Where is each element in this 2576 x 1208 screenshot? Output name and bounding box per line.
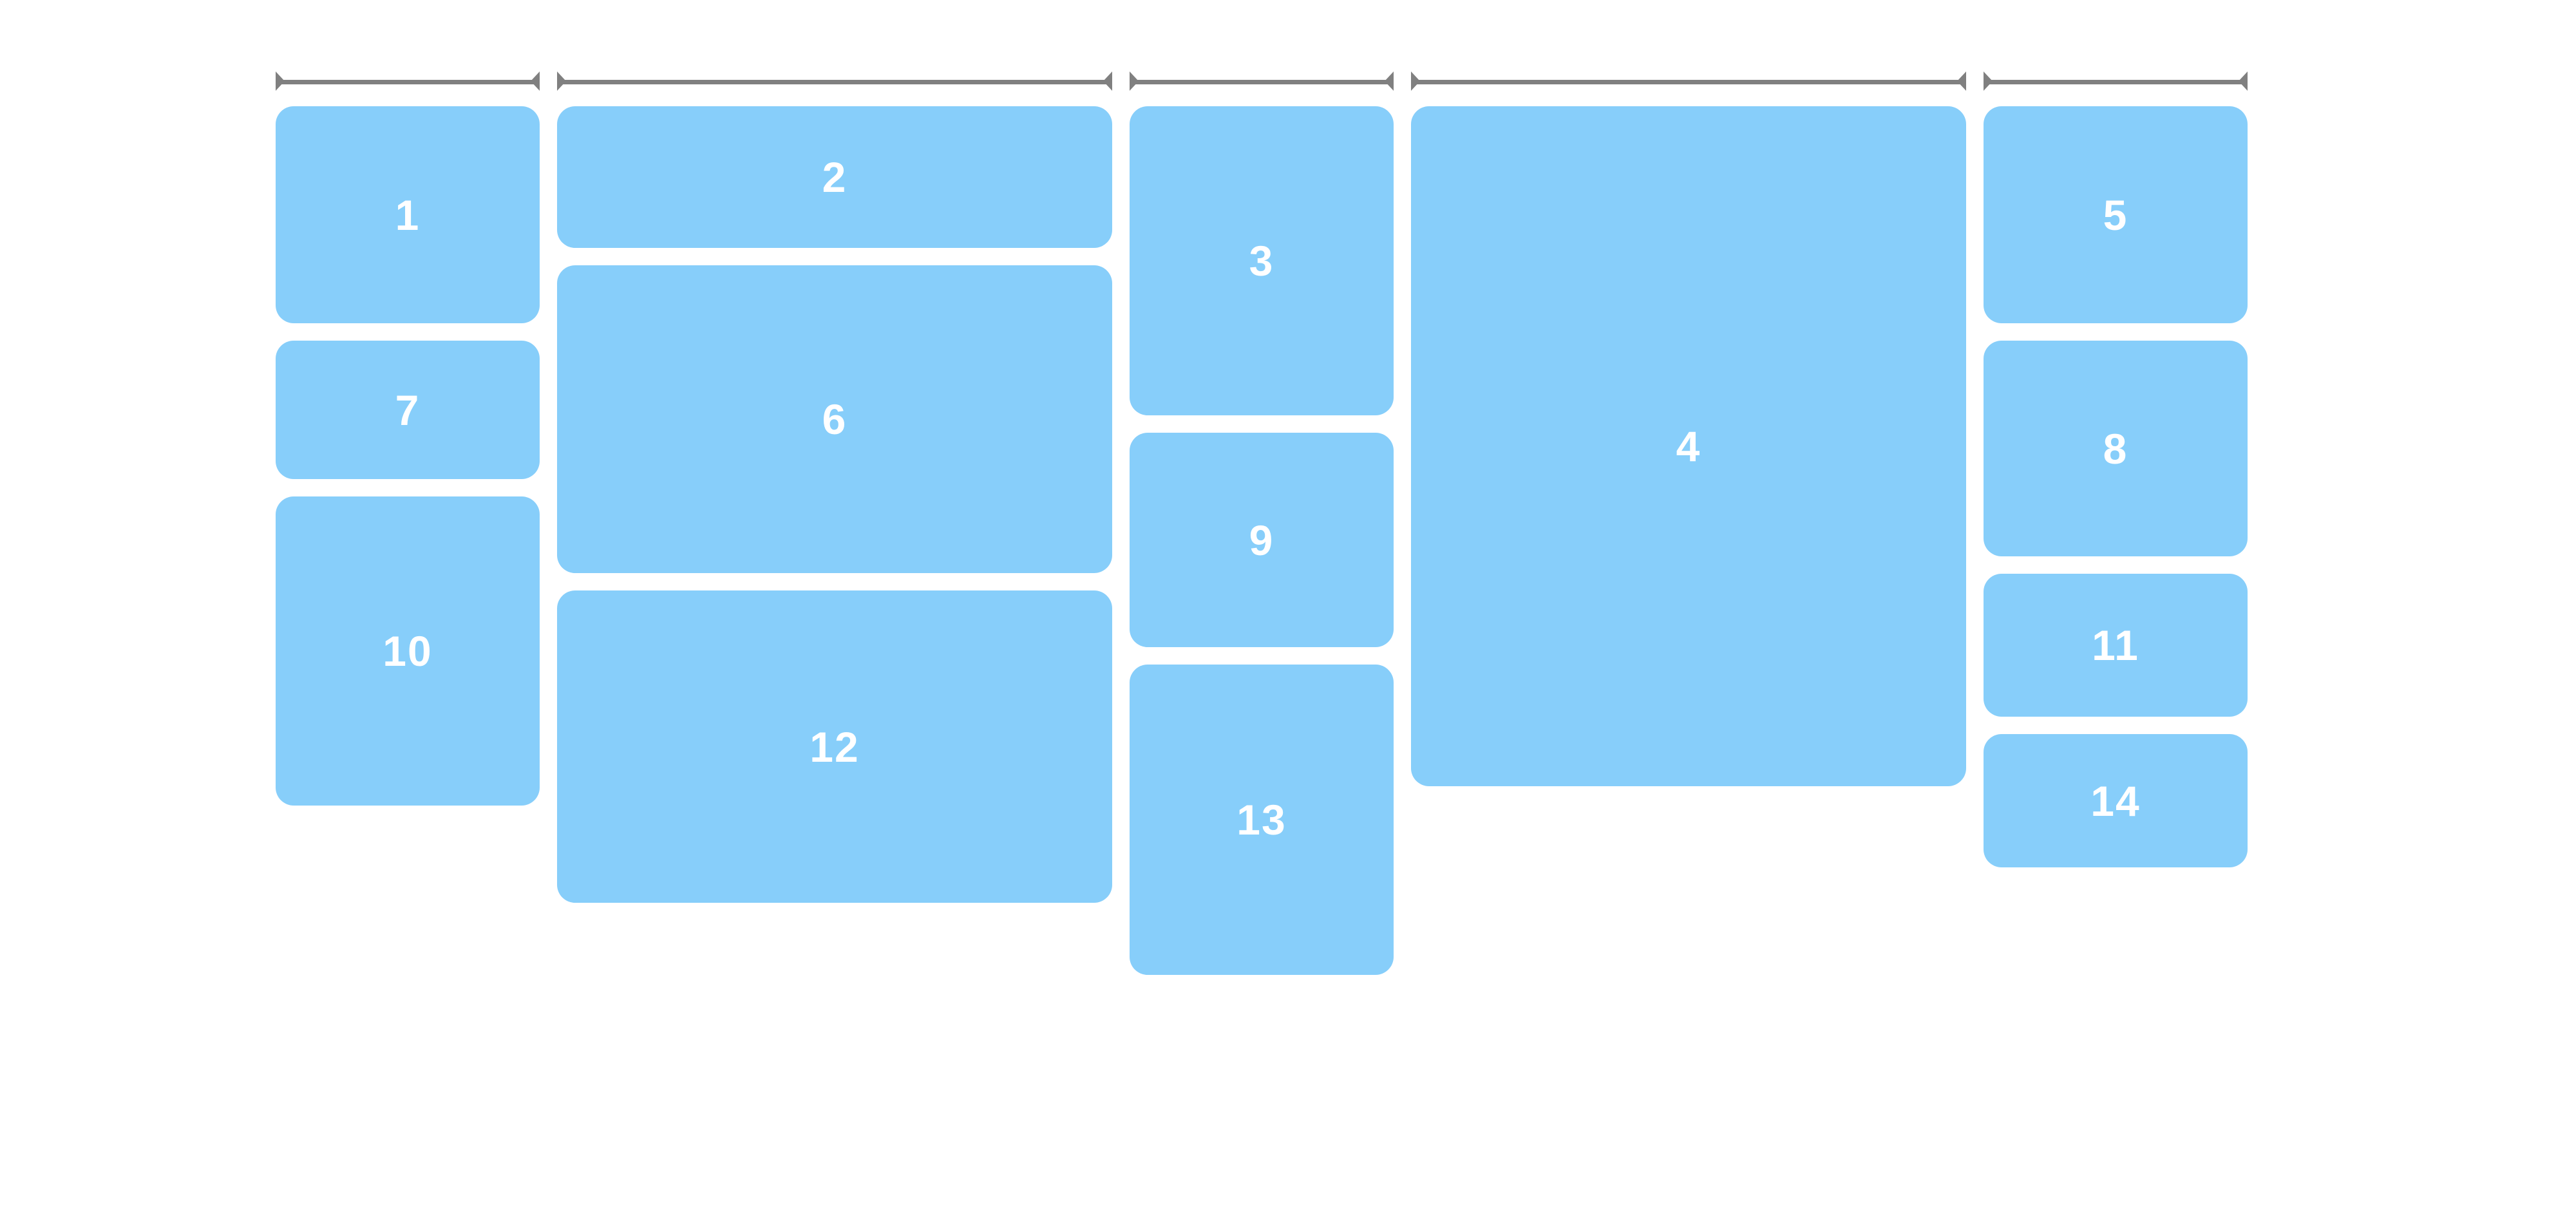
masonry-column-4: 4 [1411, 71, 1966, 804]
masonry-item: 1 [276, 106, 540, 323]
column-width-ruler [557, 71, 1112, 91]
masonry-item: 3 [1130, 106, 1394, 415]
masonry-board: 1 7 10 2 6 12 3 9 13 4 [276, 71, 2248, 992]
masonry-item-label: 8 [2103, 428, 2128, 470]
masonry-item: 14 [1984, 734, 2248, 867]
masonry-item: 2 [557, 106, 1112, 248]
masonry-item-label: 6 [822, 398, 848, 440]
ruler-line [277, 80, 538, 84]
ruler-line [1131, 80, 1392, 84]
masonry-item: 6 [557, 265, 1112, 573]
masonry-item-label: 14 [2090, 780, 2140, 822]
masonry-column-3: 3 9 13 [1130, 71, 1394, 992]
ruler-right-arrow-icon [1385, 71, 1394, 91]
masonry-item: 12 [557, 590, 1112, 903]
masonry-item: 7 [276, 341, 540, 479]
ruler-right-arrow-icon [1957, 71, 1966, 91]
ruler-line [1412, 80, 1965, 84]
masonry-item-label: 9 [1249, 519, 1274, 562]
masonry-column-1: 1 7 10 [276, 71, 540, 823]
column-width-ruler [1411, 71, 1966, 91]
ruler-line [558, 80, 1111, 84]
column-width-ruler [276, 71, 540, 91]
masonry-item-label: 7 [395, 389, 421, 431]
masonry-item: 10 [276, 496, 540, 806]
ruler-right-arrow-icon [1103, 71, 1112, 91]
ruler-line [1985, 80, 2246, 84]
masonry-item-label: 1 [395, 194, 421, 236]
masonry-item: 5 [1984, 106, 2248, 323]
masonry-item-label: 10 [383, 630, 432, 672]
masonry-item-label: 12 [810, 726, 859, 768]
masonry-item-label: 5 [2103, 194, 2128, 236]
masonry-column-2: 2 6 12 [557, 71, 1112, 920]
masonry-item-label: 2 [822, 156, 848, 198]
masonry-item: 9 [1130, 433, 1394, 647]
masonry-item-label: 11 [2092, 624, 2139, 666]
masonry-item-label: 13 [1236, 798, 1286, 841]
masonry-item: 8 [1984, 341, 2248, 556]
column-width-ruler [1130, 71, 1394, 91]
masonry-item: 4 [1411, 106, 1966, 786]
masonry-item-label: 4 [1676, 425, 1701, 467]
ruler-right-arrow-icon [2239, 71, 2248, 91]
masonry-item-label: 3 [1249, 240, 1274, 282]
column-width-ruler [1984, 71, 2248, 91]
ruler-right-arrow-icon [531, 71, 540, 91]
masonry-item: 13 [1130, 665, 1394, 975]
masonry-column-5: 5 8 11 14 [1984, 71, 2248, 885]
masonry-item: 11 [1984, 574, 2248, 717]
